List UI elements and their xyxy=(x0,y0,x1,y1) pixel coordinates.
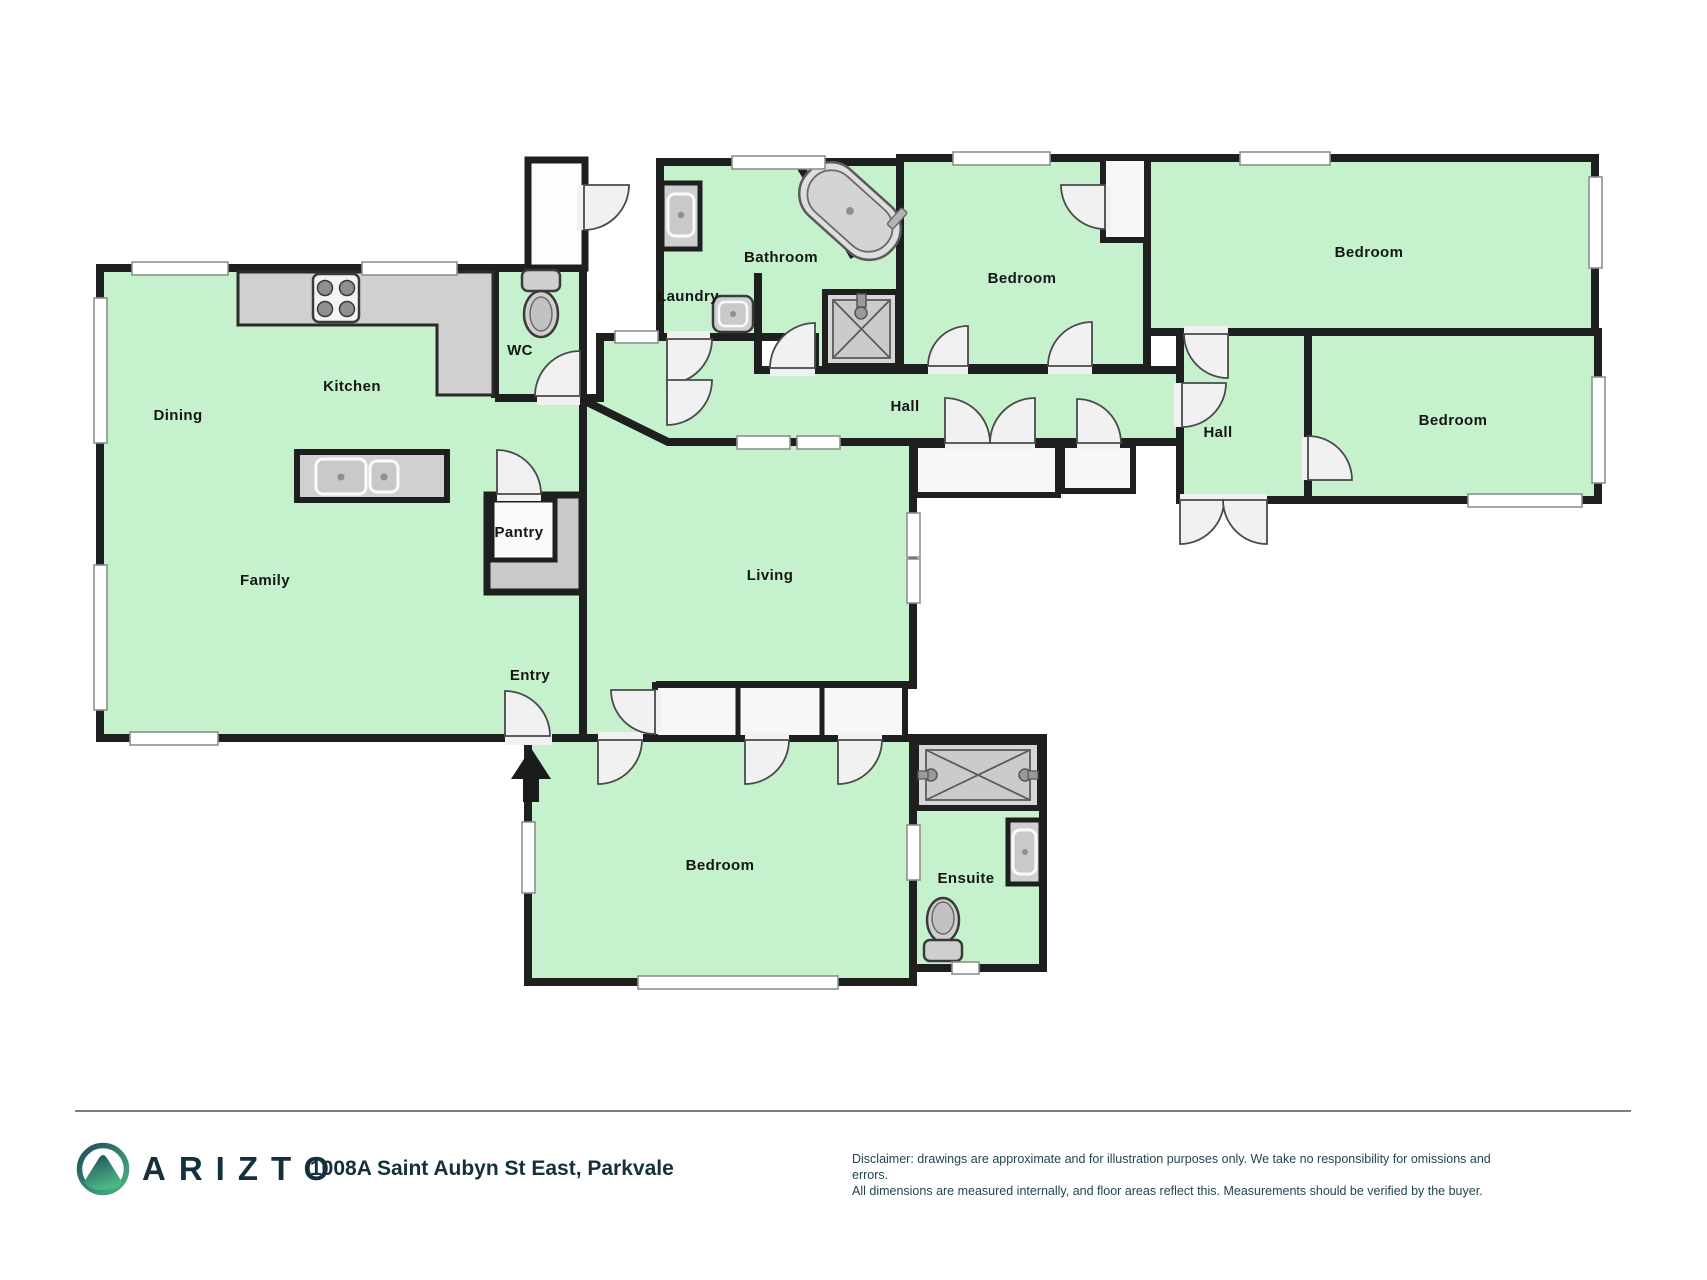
room-label-bedroom-4: Bedroom xyxy=(686,857,755,874)
hall-closet-1 xyxy=(915,445,1058,495)
window xyxy=(1240,152,1330,165)
room-label-ensuite: Ensuite xyxy=(938,870,995,887)
entry-porch xyxy=(528,160,585,268)
room-label-bedroom-3: Bedroom xyxy=(1419,412,1488,429)
room-label-bedroom-2: Bedroom xyxy=(1335,244,1404,261)
laundry-bench xyxy=(662,183,700,249)
opening xyxy=(737,436,790,449)
room-label-bathroom: Bathroom xyxy=(744,249,818,266)
room-label-bedroom-1: Bedroom xyxy=(988,270,1057,287)
window xyxy=(1592,377,1605,483)
room-label-entry: Entry xyxy=(510,667,551,684)
ensuite-sink xyxy=(1008,820,1041,884)
ensuite-door-slot xyxy=(907,825,920,880)
laundry-tub xyxy=(713,296,753,332)
page: { "plan": { "rooms": [ {"id":"dining","l… xyxy=(0,0,1707,1280)
window xyxy=(1468,494,1582,507)
window xyxy=(130,732,218,745)
ensuite-toilet xyxy=(924,898,962,961)
property-address: 1008A Saint Aubyn St East, Parkvale xyxy=(310,1157,674,1181)
window xyxy=(952,962,979,974)
floor-plan: DiningKitchenFamilyWCPantryEntryLaundryB… xyxy=(0,0,1707,1280)
window xyxy=(94,298,107,443)
wc-toilet xyxy=(522,270,560,337)
window xyxy=(953,152,1050,165)
kitchen-island xyxy=(297,452,447,500)
disclaimer-text: Disclaimer: drawings are approximate and… xyxy=(852,1152,1500,1199)
disclaimer-line-1: Disclaimer: drawings are approximate and… xyxy=(852,1152,1500,1184)
disclaimer-line-2: All dimensions are measured internally, … xyxy=(852,1184,1500,1200)
window xyxy=(362,262,457,275)
room-label-kitchen: Kitchen xyxy=(323,378,381,395)
footer-divider xyxy=(75,1110,1631,1112)
window xyxy=(94,565,107,710)
opening xyxy=(907,513,920,557)
opening xyxy=(907,559,920,603)
room-label-family: Family xyxy=(240,572,290,589)
stove xyxy=(313,274,359,322)
pantry-shelves xyxy=(487,495,582,592)
bathroom-shower xyxy=(825,292,898,366)
window xyxy=(638,976,838,989)
ensuite-shower xyxy=(916,742,1040,808)
hall-closet-2 xyxy=(1062,445,1133,491)
opening xyxy=(797,436,840,449)
window xyxy=(732,156,825,169)
arizto-logo-icon xyxy=(76,1142,130,1196)
hall2-french-door-left xyxy=(1180,500,1224,544)
window xyxy=(132,262,228,275)
window xyxy=(522,822,535,893)
window xyxy=(1589,177,1602,268)
room-label-hall-2: Hall xyxy=(1203,424,1232,441)
room-label-hall-1: Hall xyxy=(890,398,919,415)
porch-door xyxy=(584,185,629,230)
window xyxy=(615,331,658,343)
room-label-dining: Dining xyxy=(153,407,202,424)
room-label-laundry: Laundry xyxy=(657,288,719,305)
room-label-pantry: Pantry xyxy=(494,524,543,541)
hall2-french-door-right xyxy=(1223,500,1267,544)
bedroom4-wardrobes xyxy=(655,685,905,738)
room-label-living: Living xyxy=(747,567,794,584)
room-label-wc: WC xyxy=(507,342,533,359)
